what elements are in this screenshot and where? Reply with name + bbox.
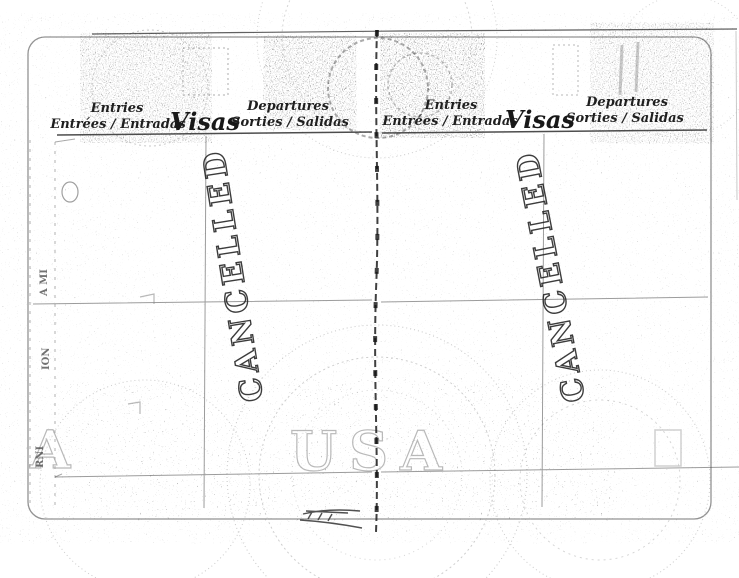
left-visas-title: Visas [170, 107, 240, 136]
scan-right-edge-line [736, 31, 737, 200]
right-visas-title: Visas [505, 105, 575, 134]
left-departures-label: Departures [246, 99, 329, 114]
right-departures-sublabel: Sorties / Salidas [566, 111, 684, 126]
left-entries-label: Entries [90, 101, 144, 116]
left-entries-sublabel: Entrées / Entradas [49, 117, 186, 132]
passport-scan-canvas: A USA Entries Entrées / Entradas Visas D… [0, 0, 739, 578]
edge-stamp-fragment: ION [41, 347, 52, 370]
smudge-bottom-left [70, 390, 270, 515]
scanned-passport-visa-spread: A USA Entries Entrées / Entradas Visas D… [0, 0, 739, 578]
right-entries-label: Entries [424, 98, 478, 113]
right-departures-label: Departures [585, 95, 668, 110]
edge-stamp-fragment: RNI [35, 446, 46, 468]
edge-stamp-fragment: A MI [39, 269, 50, 297]
right-entries-sublabel: Entrées / Entradas [381, 114, 518, 129]
left-departures-sublabel: Sorties / Salidas [231, 115, 349, 130]
